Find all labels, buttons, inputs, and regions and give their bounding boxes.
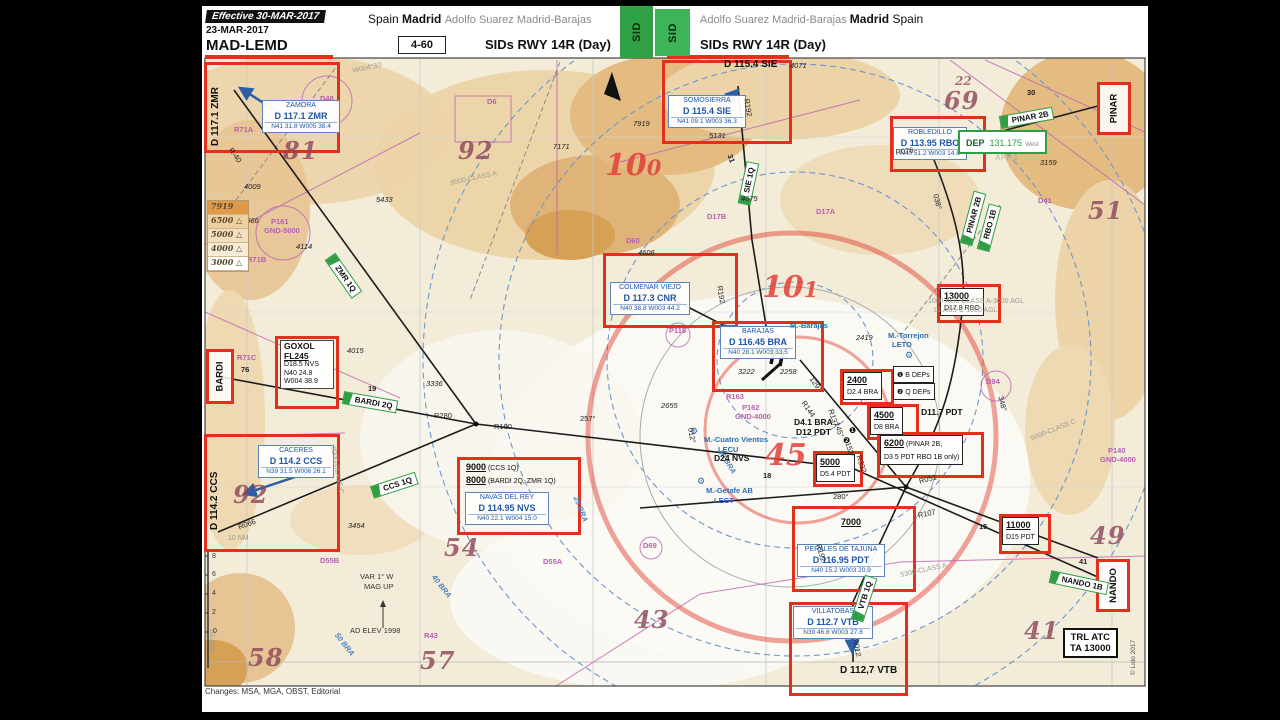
scale-tick-label: 6 — [212, 571, 216, 578]
altitude-restriction-box: ❶ B DEPs — [893, 366, 934, 383]
map-label: 15 — [979, 522, 987, 531]
altitude-line: D8 BRA — [874, 420, 899, 433]
map-label: R43 — [424, 631, 438, 640]
map-label: D55A — [543, 557, 562, 566]
map-label: 100 — [605, 148, 661, 183]
scale-tick-label: 8 — [212, 553, 216, 560]
map-label: 18 — [763, 471, 771, 480]
navaid-box: NAVAS DEL REYD 114.95 NVSN40 22.1 W004 1… — [465, 492, 549, 525]
altitude-line: ❶ B DEPs — [897, 368, 930, 381]
navaid-box-line: N39 31.5 W006 26.1 — [261, 467, 331, 476]
navaid-box-line: PERALES DE TAJUNA — [800, 546, 882, 555]
edge-waypoint-text: PINAR — [1109, 94, 1120, 124]
edge-waypoint-label: PINAR — [1097, 82, 1131, 135]
map-label: P140 — [1108, 446, 1126, 455]
map-label: 5433 — [376, 195, 393, 204]
sid-route-badge: BARDI 2Q — [342, 391, 399, 413]
map-label: 19 — [368, 384, 376, 393]
map-label: 49 — [1090, 521, 1125, 550]
navaid-box-line: D 115.4 SIE — [671, 106, 743, 117]
map-label: R71B — [247, 255, 266, 264]
departure-frequency-box: DEP131.175West — [958, 130, 1047, 154]
map-label: 10 NM — [228, 535, 249, 542]
scale-tick-label: 4 — [212, 590, 216, 597]
navaid-box: GOXOLFL245D18.5 NVSN40 24.8W004 38.9 — [280, 340, 334, 389]
dep-frequency: 131.175 — [990, 138, 1023, 148]
edge-waypoint-label: BARDI — [206, 349, 234, 404]
map-label: VAR 1° W — [360, 572, 393, 581]
navaid-box-line: BARAJAS — [723, 328, 793, 337]
map-label: 4015 — [347, 346, 364, 355]
navaid-box-line: ROBLEDILLO — [896, 129, 964, 138]
navaid-box-line: ZAMORA — [265, 102, 337, 111]
altitude-line: 8000 (BARDI 2Q, ZMR 1Q) — [466, 474, 556, 487]
altitude-restriction-box: 11000D15 PDT — [1002, 517, 1039, 545]
map-label: 69 — [944, 86, 979, 115]
map-label: D6 — [487, 97, 497, 106]
map-label: 40 BRA — [430, 573, 454, 600]
map-label: 51 — [1088, 196, 1123, 225]
sid-route-badge: ZMR 1Q — [325, 253, 363, 299]
map-label: 4114 — [296, 242, 312, 251]
navaid-box-line: FL245 — [284, 352, 330, 362]
map-label: APP 2 — [995, 153, 1018, 162]
navaid-box-line: N39 46.8 W003 27.8 — [796, 628, 870, 637]
map-label: D94 — [986, 377, 1000, 386]
legend-elevation-row: 5000 △ — [208, 229, 248, 243]
navaid-box: ZAMORAD 117.1 ZMRN41 31.8 W005 38.4 — [262, 100, 340, 133]
map-label: 54 — [444, 533, 479, 562]
map-label: M.-Cuatro Vientos — [704, 435, 768, 444]
map-label: AD ELEV 1998 — [350, 626, 400, 635]
legend-elevation-row: 7919 — [208, 201, 248, 215]
altitude-restriction-box: 2400D2.4 BRA — [843, 372, 882, 400]
map-label: M.-Getafe AB — [706, 486, 753, 495]
map-annotations: BARDIPINARNANDOZAMORAD 117.1 ZMRN41 31.8… — [0, 0, 1280, 720]
altitude-line: 11000 — [1006, 519, 1035, 530]
map-label: 41 — [1079, 557, 1087, 566]
map-label: 257° — [580, 414, 596, 423]
map-label: ⚙ — [697, 476, 705, 487]
altitude-line: 4500 — [874, 409, 899, 420]
map-label: R144 — [800, 399, 818, 419]
dep-sector: West — [1025, 142, 1039, 148]
navaid-box-line: N40 22.1 W004 15.0 — [468, 514, 546, 523]
copyright: © Lido 2017 — [1130, 640, 1137, 675]
scale-tick-label: 0 — [213, 628, 217, 635]
navaid-box-line: N40 15.2 W003 20.9 — [800, 566, 882, 575]
map-label: 3159 — [1040, 158, 1057, 167]
map-label: 7171 — [553, 142, 570, 151]
sid-route-badge: CCS 1Q — [370, 472, 419, 499]
map-label: LEGT — [714, 496, 734, 505]
map-label: MAG UP — [364, 582, 394, 591]
navaid-box-line: SOMOSIERRA — [671, 97, 743, 106]
map-label: 22 — [955, 74, 972, 88]
trl-line: TRL ATC — [1070, 632, 1111, 643]
madrid-sid-chart-screenshot: Effective 30-MAR-2017 23-MAR-2017 MAD-LE… — [0, 0, 1280, 720]
map-label: 3336 — [426, 379, 443, 388]
map-label: 2419 — [856, 333, 873, 342]
sid-route-badge: PINAR 2B — [999, 107, 1055, 129]
map-label: D69 — [643, 541, 657, 550]
changes-note: Changes: MSA, MGA, OBST, Editorial — [205, 687, 340, 696]
altitude-line: D3.5 PDT RBO 1B only) — [884, 450, 959, 463]
map-label: 348° — [996, 395, 1008, 412]
map-label: D17A — [816, 207, 835, 216]
altitude-line: D2.4 BRA — [847, 385, 878, 398]
map-label: 1000 AGL-CLASS A-3000 AGL — [928, 298, 1024, 305]
map-label: R107 — [917, 507, 936, 520]
map-label: R163 — [726, 392, 744, 401]
navaid-box: BARAJASD 116.45 BRAN40 28.1 W003 33.5 — [720, 326, 796, 359]
map-label: P118 — [669, 326, 686, 335]
altitude-line: ❷ Q DEPs — [897, 385, 931, 398]
map-label: D41 — [1038, 196, 1052, 205]
map-label: 4606 — [638, 248, 655, 257]
map-label: 30 — [1027, 88, 1035, 97]
map-label: 57 — [420, 646, 455, 675]
map-label: D11.7 PDT — [921, 407, 963, 417]
scale-tick-label: 2 — [212, 609, 216, 616]
map-label: ⚙ — [905, 350, 913, 361]
altitude-restriction-box: ❷ Q DEPs — [893, 383, 935, 400]
navaid-box-line: N41 31.8 W005 38.4 — [265, 122, 337, 131]
map-label: GND-4000 — [1100, 455, 1136, 464]
navaid-box-line: N40 24.8 — [284, 370, 330, 379]
map-label: 4675 — [741, 194, 758, 203]
map-label: P161 — [271, 217, 289, 226]
map-label: R71C — [237, 353, 256, 362]
map-label: 58 — [248, 643, 283, 672]
map-label: R100 — [494, 422, 512, 431]
map-label: 038° — [931, 193, 943, 210]
map-label: P162 — [742, 403, 760, 412]
altitude-restriction-box: 9000 (CCS 1Q)8000 (BARDI 2Q, ZMR 1Q) — [463, 460, 559, 488]
map-label: D 115.4 SIE — [724, 59, 777, 70]
navaid-box-line: D 116.45 BRA — [723, 337, 793, 348]
map-label: D55B — [320, 556, 339, 565]
map-label: 92 — [233, 480, 268, 509]
map-label: 4009 — [244, 182, 261, 191]
navaid-box: SOMOSIERRAD 115.4 SIEN41 09.1 W003 36.3 — [668, 95, 746, 128]
navaid-box-line: D 116.95 PDT — [800, 555, 882, 566]
map-label: R71A — [234, 125, 253, 134]
altitude-line: D5.4 PDT — [820, 467, 851, 480]
altitude-restriction-box: 6200 (PINAR 2B,D3.5 PDT RBO 1B only) — [880, 435, 963, 465]
map-label: 101 — [762, 270, 818, 305]
altitude-line: D15 PDT — [1006, 530, 1035, 543]
navaid-box: PERALES DE TAJUNAD 116.95 PDTN40 15.2 W0… — [797, 544, 885, 577]
map-label: ❶ — [849, 426, 856, 435]
navaid-box: CACERESD 114.2 CCSN39 31.5 W006 26.1 — [258, 445, 334, 478]
map-label: D48 — [320, 94, 334, 103]
map-label: 280° — [833, 492, 849, 501]
map-label: 41 — [1024, 616, 1059, 645]
map-label: CLASS C-1000 AGL — [934, 307, 997, 314]
map-label: D 114.2 CCS — [209, 472, 220, 530]
map-label: ❷ — [843, 436, 850, 445]
altitude-line: 7000 — [841, 516, 861, 527]
map-label: 4071 — [790, 61, 807, 70]
map-label: GND-4000 — [735, 412, 771, 421]
altitude-line: 2400 — [847, 374, 878, 385]
altitude-line: 6200 (PINAR 2B, — [884, 437, 959, 450]
navaid-box-line: N40 28.1 W003 33.5 — [723, 348, 793, 357]
map-label: 43 — [634, 605, 669, 634]
navaid-box-line: NAVAS DEL REY — [468, 494, 546, 503]
map-label: D 112,7 VTB — [840, 665, 897, 676]
map-label: 7919 — [633, 119, 650, 128]
map-label: D4.1 BRA — [794, 417, 833, 427]
ta-line: TA 13000 — [1070, 643, 1111, 654]
navaid-box-line: D18.5 NVS — [284, 361, 330, 370]
map-label: 5131 — [709, 131, 726, 140]
edge-waypoint-text: NANDO — [1108, 568, 1119, 603]
map-label: LETO — [892, 340, 912, 349]
map-label: 3222 — [738, 367, 755, 376]
navaid-box-line: D 114.2 CCS — [261, 456, 331, 467]
altitude-line: 9000 (CCS 1Q) — [466, 461, 556, 474]
map-label: GND-5000 — [264, 226, 300, 235]
legend-elevation-row: 4000 △ — [208, 243, 248, 257]
legend-elevation-row: 3000 △ — [208, 257, 248, 271]
map-label: D12 PDT — [796, 427, 831, 437]
navaid-box-line: N40 38.8 W003 44.2 — [613, 304, 687, 313]
map-label: M.-Torrejon — [888, 331, 929, 340]
transition-level-box: TRL ATC TA 13000 — [1063, 628, 1118, 658]
map-label: 76 — [241, 365, 249, 374]
navaid-box-line: COLMENAR VIEJO — [613, 284, 687, 293]
altitude-restriction-box: 7000 — [838, 515, 864, 528]
navaid-box-line: D 114.95 NVS — [468, 503, 546, 514]
navaid-box-line: W004 38.9 — [284, 378, 330, 387]
navaid-box: COLMENAR VIEJOD 117.3 CNRN40 38.8 W003 4… — [610, 282, 690, 315]
map-label: 92 — [458, 136, 493, 165]
navaid-box-line: D 117.3 CNR — [613, 293, 687, 304]
map-label: 45 — [765, 438, 807, 473]
altitude-restriction-box: 4500D8 BRA — [870, 407, 903, 435]
map-label: 31 — [726, 153, 737, 164]
terrain-elevation-legend: 79196500 △5000 △4000 △3000 △ — [207, 200, 249, 272]
map-label: 2655 — [661, 401, 678, 410]
map-label: 81 — [283, 136, 318, 165]
map-label: D60 — [626, 236, 640, 245]
map-label: 2258 — [780, 367, 797, 376]
map-label: D17B — [707, 212, 726, 221]
edge-waypoint-text: BARDI — [215, 361, 226, 391]
navaid-box-line: CACERES — [261, 447, 331, 456]
map-label: D24 NVS — [714, 453, 749, 463]
map-label: R280 — [434, 411, 452, 420]
altitude-line: 5000 — [820, 456, 851, 467]
map-label: W004°30' — [352, 62, 383, 75]
map-label: D 117.1 ZMR — [210, 87, 221, 146]
navaid-box-line: N41 09.1 W003 36.3 — [671, 117, 743, 126]
map-label: 9500-CLASS A — [450, 170, 498, 187]
legend-elevation-row: 6500 △ — [208, 215, 248, 229]
navaid-box-line: D 117.1 ZMR — [265, 111, 337, 122]
map-label: 5000-CLASS C — [1030, 418, 1077, 442]
map-label: 3454 — [348, 521, 365, 530]
map-label: M.-Barajas — [790, 321, 828, 330]
dep-label: DEP — [966, 138, 985, 148]
